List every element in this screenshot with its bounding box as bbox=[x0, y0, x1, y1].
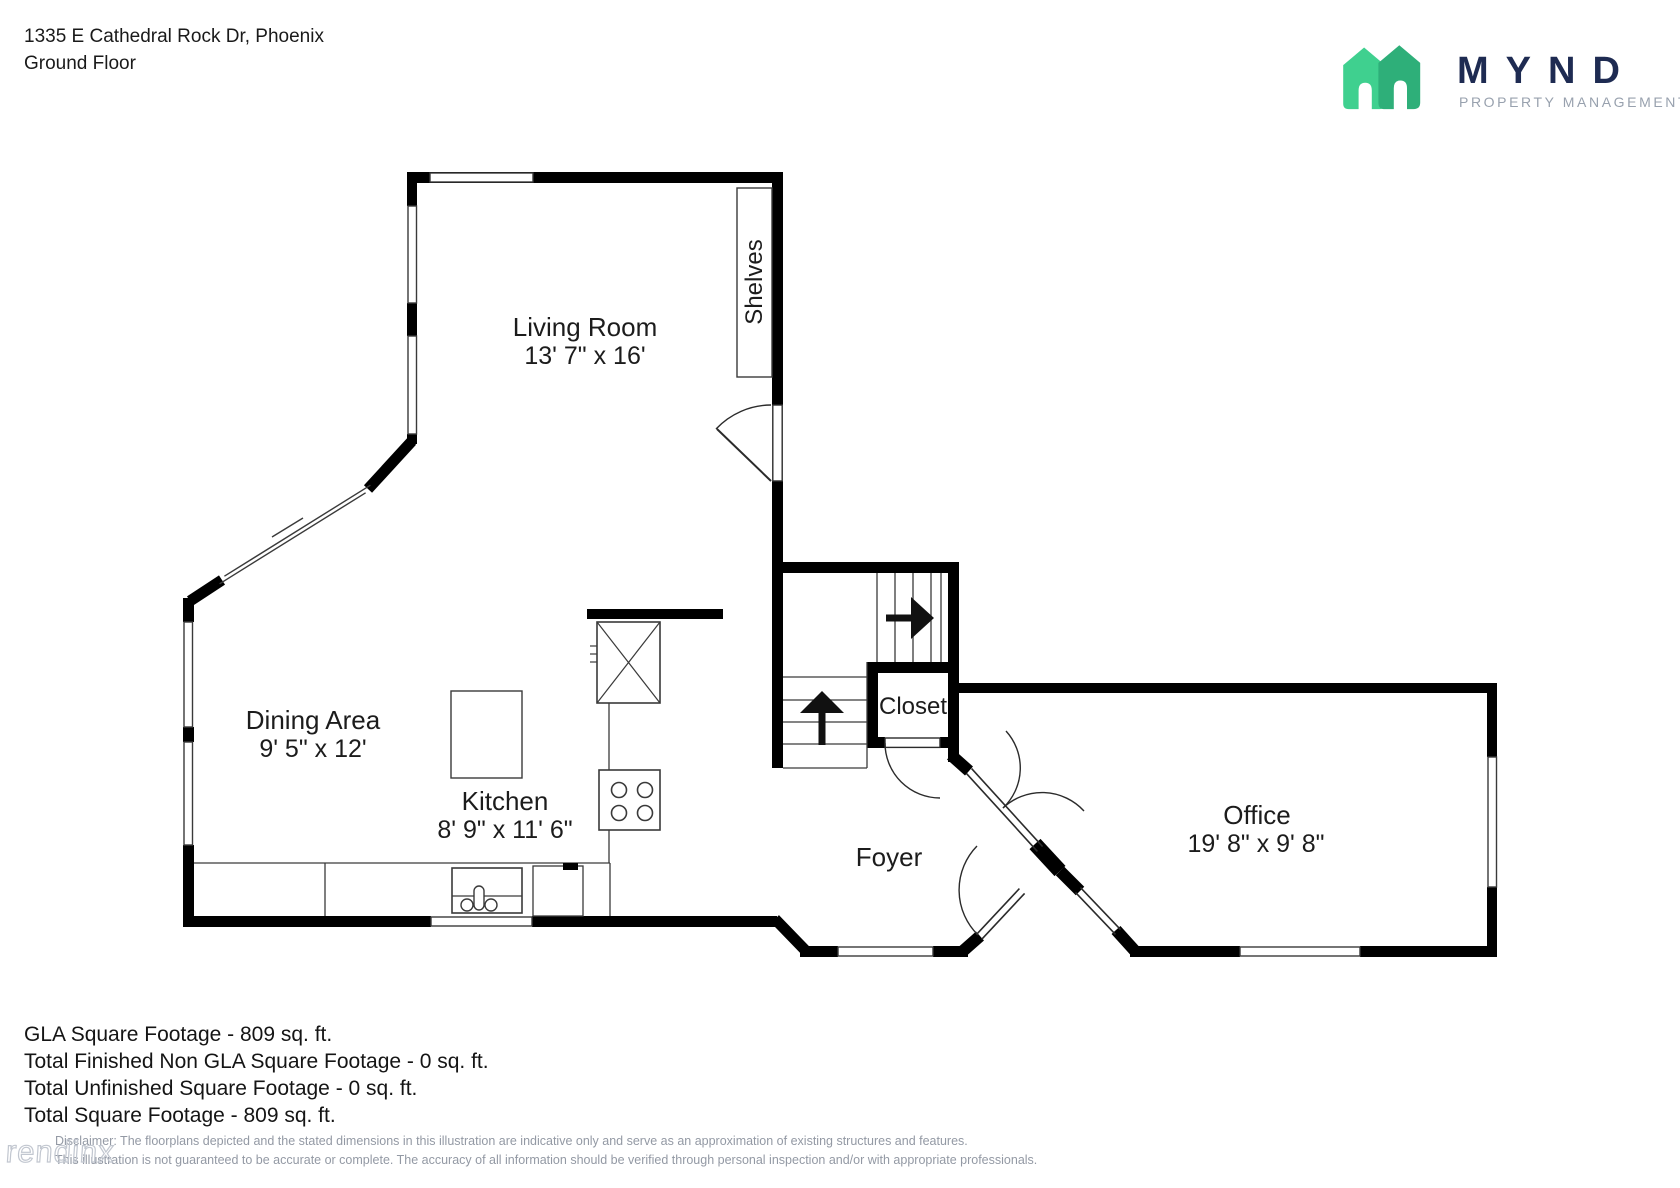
door-arc bbox=[1003, 731, 1020, 808]
window bbox=[1488, 757, 1497, 887]
door-leaf bbox=[1081, 888, 1121, 930]
rendinx-watermark: rendinx bbox=[5, 1134, 116, 1170]
disclaimer: Disclaimer: The floorplans depicted and … bbox=[55, 1132, 1037, 1170]
window bbox=[431, 917, 532, 926]
summary-line: Total Square Footage - 809 sq. ft. bbox=[24, 1102, 489, 1129]
door-arc bbox=[885, 743, 940, 798]
square-footage-summary: GLA Square Footage - 809 sq. ft. Total F… bbox=[24, 1021, 489, 1129]
kitchen-fixtures bbox=[194, 622, 660, 916]
stair-arrow-up bbox=[819, 713, 826, 745]
stove bbox=[599, 770, 660, 830]
foyer-label: Foyer bbox=[856, 842, 923, 872]
kitchen-dims: 8' 9" x 11' 6" bbox=[437, 816, 572, 844]
living-room-dims: 13' 7" x 16' bbox=[524, 342, 645, 370]
table bbox=[451, 691, 522, 778]
door-leaf bbox=[972, 769, 1043, 847]
summary-line: Total Unfinished Square Footage - 0 sq. … bbox=[24, 1075, 489, 1102]
door-leaf bbox=[1076, 892, 1116, 934]
diagonal-walls bbox=[190, 441, 1135, 951]
floorplan-page: 1335 E Cathedral Rock Dr, Phoenix Ground… bbox=[0, 0, 1680, 1188]
shelves-label: Shelves bbox=[741, 239, 768, 324]
diagonal-window bbox=[220, 485, 371, 584]
floorplan-drawing: Living Room 13' 7" x 16' Dining Area 9' … bbox=[0, 0, 1680, 1188]
window bbox=[408, 336, 417, 434]
dining-area-dims: 9' 5" x 12' bbox=[259, 735, 366, 763]
faucet bbox=[474, 886, 484, 910]
summary-line: Total Finished Non GLA Square Footage - … bbox=[24, 1048, 489, 1075]
kitchen-label: Kitchen bbox=[462, 786, 549, 816]
door-jamb bbox=[885, 738, 940, 747]
closet-label: Closet bbox=[879, 693, 947, 720]
living-room-label: Living Room bbox=[513, 312, 658, 342]
window bbox=[408, 206, 417, 303]
window bbox=[1240, 947, 1360, 956]
summary-line: GLA Square Footage - 809 sq. ft. bbox=[24, 1021, 489, 1048]
door-arc bbox=[716, 405, 771, 429]
window bbox=[184, 742, 193, 845]
window bbox=[430, 173, 533, 182]
door-leaf bbox=[976, 889, 1019, 935]
window bbox=[838, 947, 933, 956]
window bbox=[184, 622, 193, 727]
dishwasher bbox=[533, 866, 583, 916]
disclaimer-line: Disclaimer: The floorplans depicted and … bbox=[55, 1132, 1037, 1151]
office-label: Office bbox=[1223, 800, 1290, 830]
disclaimer-line: This illustration is not guaranteed to b… bbox=[55, 1151, 1037, 1170]
door-arc bbox=[1003, 793, 1084, 811]
door-leaf bbox=[966, 773, 1037, 851]
dining-area-label: Dining Area bbox=[246, 705, 381, 735]
office-dims: 19' 8" x 9' 8" bbox=[1187, 830, 1324, 858]
door-leaf bbox=[717, 429, 771, 481]
door-arc bbox=[959, 846, 978, 935]
door-jamb bbox=[773, 405, 782, 481]
stair-arrow-right bbox=[886, 615, 912, 622]
door-leaf bbox=[982, 893, 1025, 939]
